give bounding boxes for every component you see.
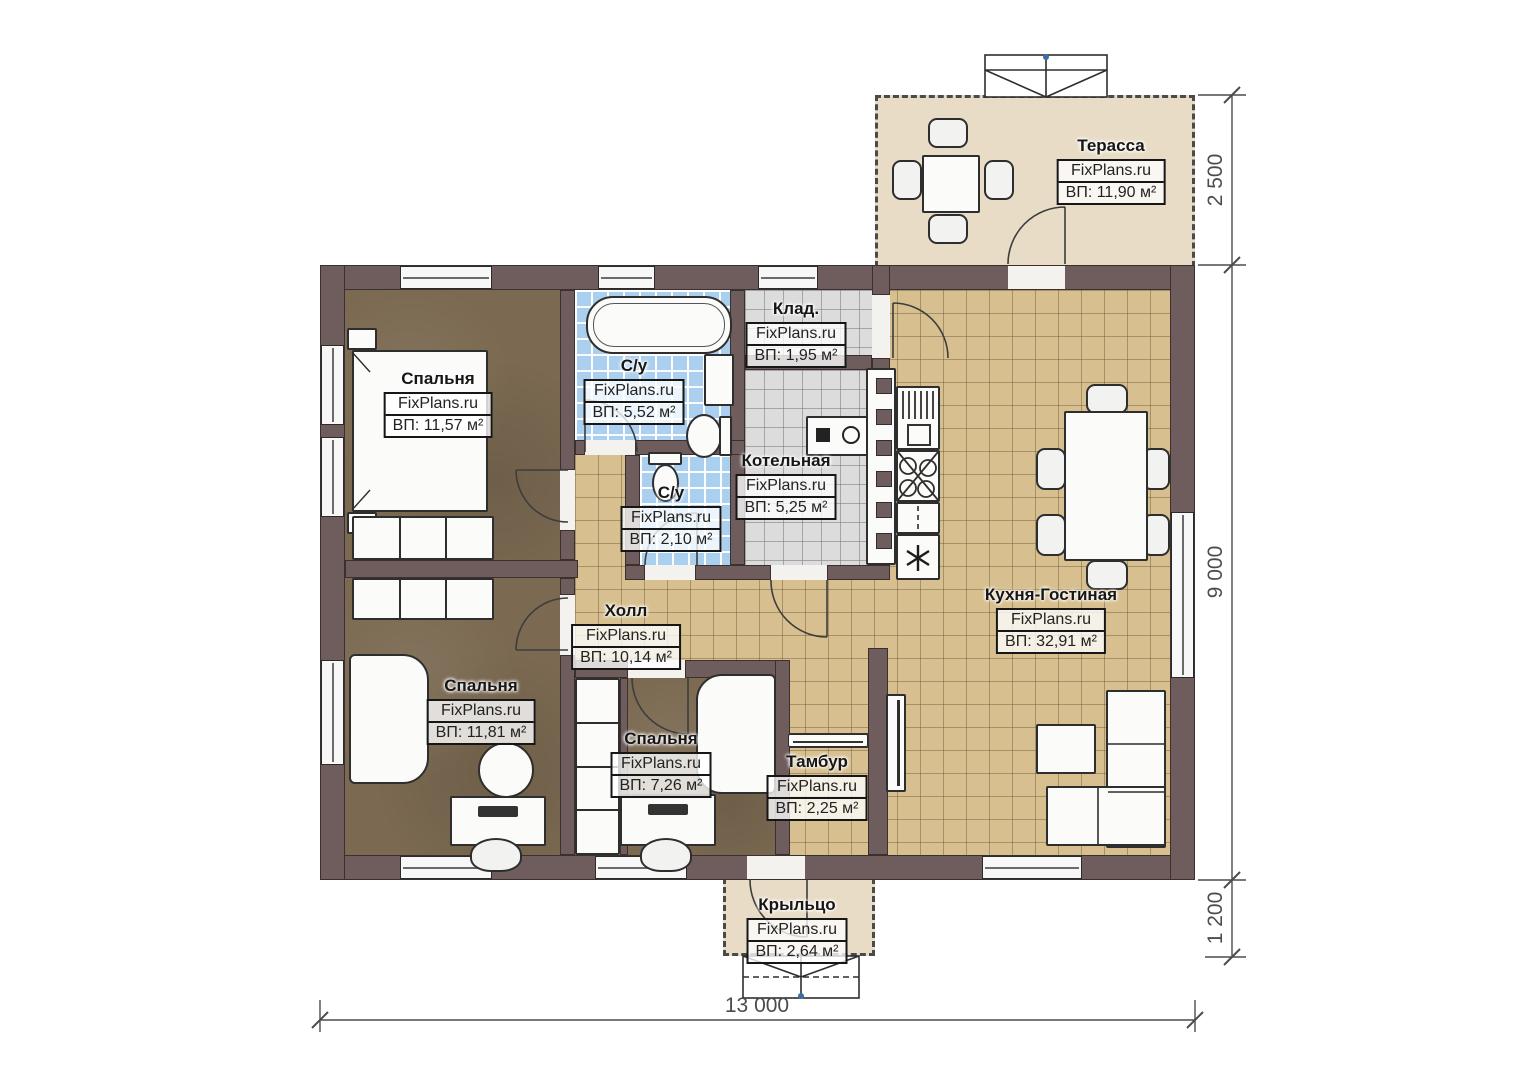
watermark: FixPlans.ru: [998, 610, 1104, 632]
wall: [560, 655, 575, 855]
door-opening: [585, 440, 635, 455]
potted-plant: [478, 742, 534, 798]
wall: [872, 265, 890, 295]
terrace-table: [922, 155, 980, 213]
room-label-bedroom-left: Спальня FixPlans.ru ВП: 11,81 м²: [427, 676, 536, 745]
wall: [560, 530, 575, 560]
terrace-chair: [984, 160, 1014, 200]
room-label-bathroom-small: С/у FixPlans.ru ВП: 2,10 м²: [621, 483, 722, 552]
room-info-box: FixPlans.ru ВП: 11,81 м²: [427, 699, 536, 745]
room-area: ВП: 11,90 м²: [1059, 183, 1164, 203]
door-opening: [645, 565, 695, 580]
room-label-kitchen-living: Кухня-Гостиная FixPlans.ru ВП: 32,91 м²: [985, 585, 1117, 654]
wall: [345, 560, 578, 578]
corner-sofa-horizontal: [1046, 786, 1166, 846]
room-name: Кухня-Гостиная: [985, 585, 1117, 605]
door-opening: [771, 565, 827, 580]
room-info-box: FixPlans.ru ВП: 11,57 м²: [384, 392, 493, 438]
window: [321, 660, 344, 765]
fridge: [896, 534, 940, 580]
watermark: FixPlans.ru: [623, 508, 720, 530]
watermark: FixPlans.ru: [748, 324, 845, 346]
vent-shaft: [876, 471, 892, 487]
watermark: FixPlans.ru: [749, 920, 846, 942]
computer-monitor: [648, 804, 688, 815]
room-name: Котельная: [741, 451, 830, 471]
dimension-porch-depth: 1 200: [1204, 892, 1227, 945]
vent-shaft-column: [866, 368, 896, 565]
room-info-box: FixPlans.ru ВП: 32,91 м²: [996, 608, 1106, 654]
vent-shaft: [876, 440, 892, 456]
wall: [625, 565, 645, 580]
dishwasher: [896, 502, 940, 534]
room-label-porch: Крыльцо FixPlans.ru ВП: 2,64 м²: [747, 895, 848, 964]
window: [400, 266, 492, 289]
sofa: [349, 654, 429, 784]
room-info-box: FixPlans.ru ВП: 5,52 м²: [584, 379, 685, 425]
kitchen-sink-unit: [896, 386, 940, 450]
wall: [560, 290, 575, 470]
vent-shaft: [876, 502, 892, 518]
terrace-chair: [928, 214, 968, 244]
window: [1171, 512, 1194, 678]
watermark: FixPlans.ru: [386, 394, 491, 416]
watermark: FixPlans.ru: [738, 476, 835, 498]
window: [982, 856, 1082, 879]
watermark: FixPlans.ru: [586, 381, 683, 403]
watermark: FixPlans.ru: [429, 701, 534, 723]
room-area: ВП: 5,25 м²: [738, 498, 835, 518]
room-info-box: FixPlans.ru ВП: 5,25 м²: [736, 474, 837, 520]
computer-monitor: [478, 806, 518, 817]
window: [598, 266, 655, 289]
wall: [695, 565, 771, 580]
room-area: ВП: 7,26 м²: [613, 776, 710, 796]
room-area: ВП: 11,57 м²: [386, 416, 491, 436]
room-name: Спальня: [624, 729, 697, 749]
room-area: ВП: 10,14 м²: [573, 648, 679, 668]
window: [321, 345, 344, 425]
room-name: Холл: [605, 601, 648, 621]
dining-chair: [1086, 384, 1128, 414]
stove-hob: [896, 450, 940, 502]
room-area: ВП: 2,10 м²: [623, 530, 720, 550]
nightstand: [347, 328, 377, 350]
room-info-box: FixPlans.ru ВП: 2,25 м²: [767, 775, 868, 821]
wall: [730, 290, 745, 565]
room-name: Спальня: [401, 369, 474, 389]
room-info-box: FixPlans.ru ВП: 2,64 м²: [747, 918, 848, 964]
wall: [827, 565, 890, 580]
watermark: FixPlans.ru: [613, 754, 710, 776]
wall: [575, 440, 585, 455]
room-area: ВП: 32,91 м²: [998, 632, 1104, 652]
wall: [560, 578, 575, 595]
vent-shaft: [876, 409, 892, 425]
toilet-tank: [719, 416, 732, 456]
room-label-terrace: Терасса FixPlans.ru ВП: 11,90 м²: [1057, 136, 1166, 205]
room-name: Спальня: [444, 676, 517, 696]
room-name: Тамбур: [786, 752, 848, 772]
wall: [868, 648, 888, 855]
sliding-door: [788, 734, 868, 747]
room-name: С/у: [621, 356, 647, 376]
dining-chair: [1036, 448, 1066, 490]
door-opening: [560, 470, 575, 530]
room-label-hall: Холл FixPlans.ru ВП: 10,14 м²: [571, 601, 681, 670]
wardrobe: [352, 578, 494, 620]
room-info-box: FixPlans.ru ВП: 10,14 м²: [571, 624, 681, 670]
room-label-bedroom-top: Спальня FixPlans.ru ВП: 11,57 м²: [384, 369, 493, 438]
room-info-box: FixPlans.ru ВП: 1,95 м²: [746, 322, 847, 368]
room-name: Терасса: [1077, 136, 1144, 156]
room-name: С/у: [658, 483, 684, 503]
porch-door-opening: [747, 856, 805, 879]
tv: [886, 694, 906, 792]
room-info-box: FixPlans.ru ВП: 11,90 м²: [1057, 159, 1166, 205]
terrace-chair: [892, 160, 922, 200]
dimension-house-width: 13 000: [725, 994, 789, 1017]
room-label-bathroom-main: С/у FixPlans.ru ВП: 5,52 м²: [584, 356, 685, 425]
room-name: Клад.: [773, 299, 819, 319]
dining-table: [1064, 411, 1148, 561]
drainer: [902, 391, 934, 419]
room-info-box: FixPlans.ru ВП: 2,10 м²: [621, 506, 722, 552]
watermark: FixPlans.ru: [1059, 161, 1164, 183]
watermark: FixPlans.ru: [769, 777, 866, 799]
desk-chair: [470, 838, 522, 872]
window: [321, 437, 344, 517]
room-name: Крыльцо: [758, 895, 835, 915]
room-label-vestibule: Тамбур FixPlans.ru ВП: 2,25 м²: [767, 752, 868, 821]
window: [758, 266, 818, 289]
coffee-table: [1036, 724, 1096, 774]
bathroom-cabinet: [704, 354, 734, 406]
terrace-door-opening: [1008, 266, 1065, 289]
toilet: [686, 414, 722, 458]
room-label-boiler: Котельная FixPlans.ru ВП: 5,25 м²: [736, 451, 837, 520]
watermark: FixPlans.ru: [573, 626, 679, 648]
vent-shaft: [876, 378, 892, 394]
room-area: ВП: 2,64 м²: [749, 942, 846, 962]
room-area: ВП: 1,95 м²: [748, 346, 845, 366]
room-label-pantry: Клад. FixPlans.ru ВП: 1,95 м²: [746, 299, 847, 368]
room-area: ВП: 5,52 м²: [586, 403, 683, 423]
room-area: ВП: 11,81 м²: [429, 723, 534, 743]
room-label-bedroom-bottom: Спальня FixPlans.ru ВП: 7,26 м²: [611, 729, 712, 798]
door-opening: [872, 295, 890, 358]
boiler-unit: [806, 416, 872, 456]
floor-plan: 2 500 9 000 1 200 13 000 Терасса FixPlan…: [0, 0, 1528, 1080]
room-area: ВП: 2,25 м²: [769, 799, 866, 819]
terrace-stairs: [985, 54, 1107, 97]
dimension-house-height: 9 000: [1204, 546, 1227, 599]
desk-chair: [640, 838, 692, 872]
terrace-chair: [928, 118, 968, 148]
dimension-terrace-depth: 2 500: [1204, 154, 1227, 207]
vent-shaft: [876, 533, 892, 549]
wardrobe: [352, 516, 494, 560]
bathtub: [586, 296, 732, 354]
dining-chair: [1036, 514, 1066, 556]
room-info-box: FixPlans.ru ВП: 7,26 м²: [611, 752, 712, 798]
